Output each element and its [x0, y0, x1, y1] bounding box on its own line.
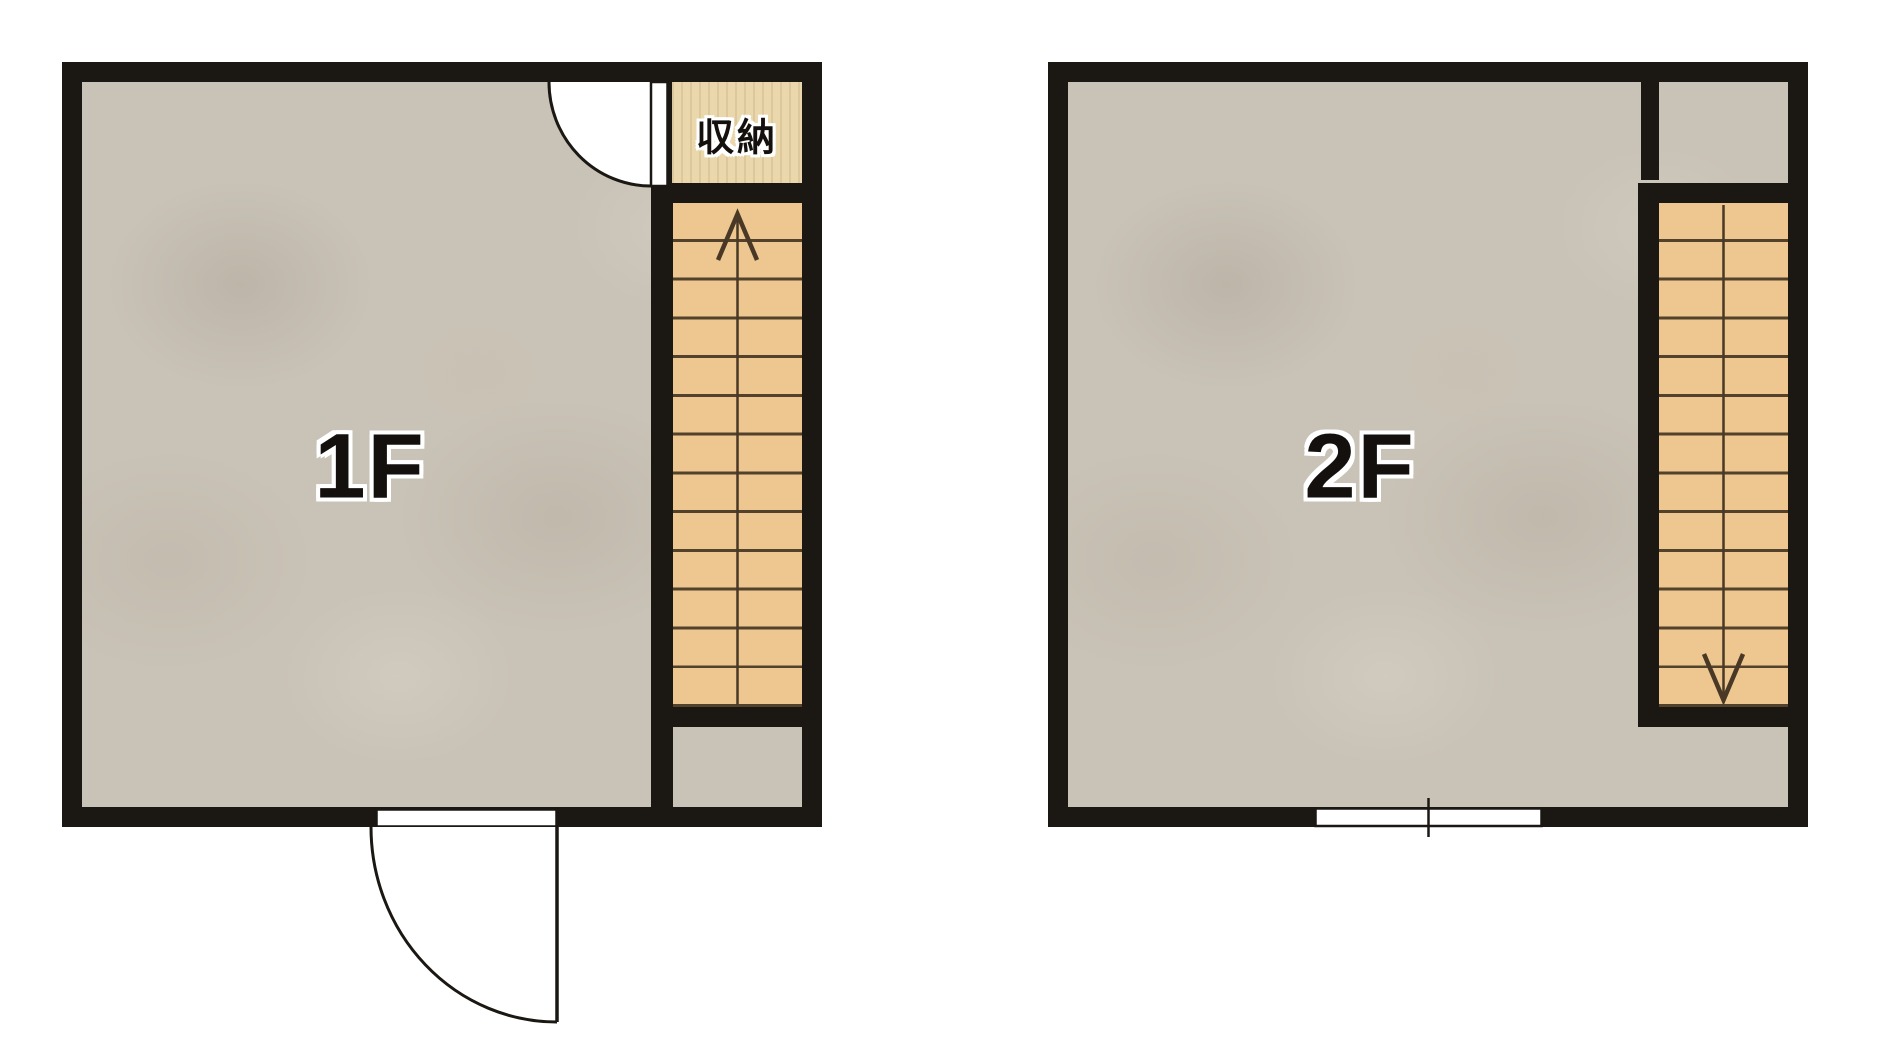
floor-plan-2f: 2F [1048, 62, 1808, 827]
wall-bottom-1f [62, 807, 822, 827]
floor-plan-canvas: 1F 収納 [0, 0, 1888, 1048]
floor-label-1f: 1F [314, 415, 425, 520]
wall-left-2f [1048, 62, 1068, 827]
wall-left-1f [62, 62, 82, 827]
storage-label: 収納 [696, 107, 778, 162]
door-swing-arc-bottom [371, 827, 557, 1022]
stair-top-wall-1f [651, 183, 822, 203]
floor-label-2f: 2F [1304, 415, 1415, 520]
wall-top-1f [62, 62, 822, 82]
stair-bottom-wall-1f [651, 707, 822, 727]
staircase-1f [673, 203, 802, 707]
stair-left-wall-2f [1638, 183, 1659, 727]
stair-bottom-wall-2f [1638, 707, 1808, 727]
stair-top-wall-2f [1638, 183, 1808, 203]
wall-top-2f [1048, 62, 1808, 82]
staircase-2f [1659, 203, 1788, 707]
storage-left-wall [668, 82, 672, 183]
floor-plan-1f: 1F 収納 [62, 62, 822, 827]
landing-stub-wall [1641, 82, 1659, 180]
wall-bottom-2f [1048, 807, 1808, 827]
door-swing-area-bottom [371, 827, 557, 1022]
